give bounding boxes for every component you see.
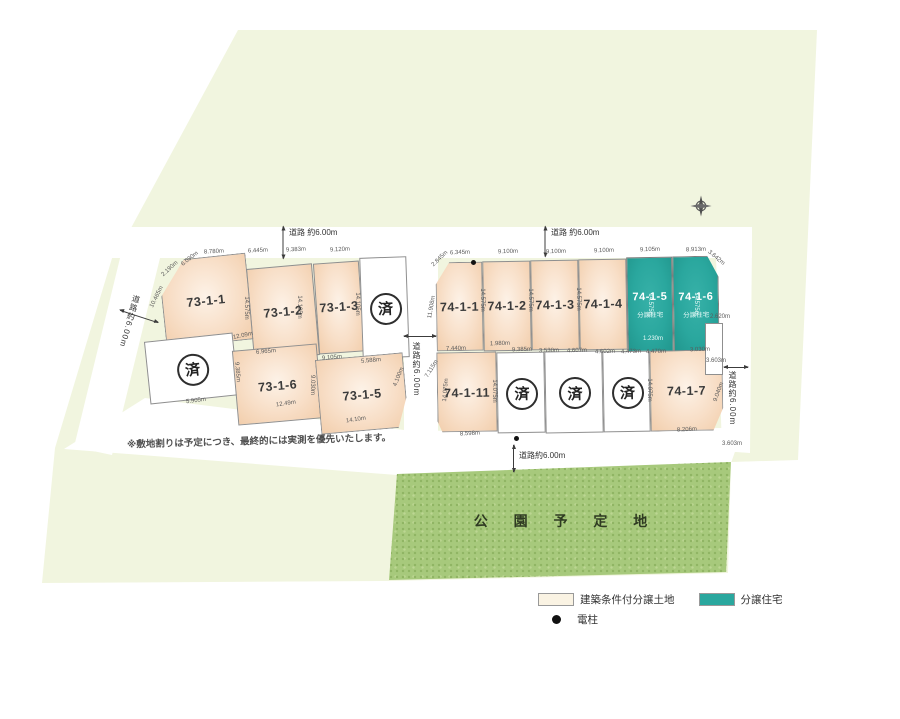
- dimension-label: 14.575m: [647, 293, 653, 316]
- lot-74-1-4: 74-1-4: [578, 259, 628, 351]
- lot-74-1-2: 74-1-2: [482, 261, 532, 352]
- lot-number-label: 73-1-6: [236, 375, 320, 396]
- dimension-label: 14.075m: [646, 378, 652, 401]
- sold-stamp: 済: [175, 352, 210, 387]
- legend: 建築条件付分譲土地 分譲住宅 電柱: [538, 592, 783, 632]
- dimension-label: 9.100m: [594, 248, 614, 255]
- lot-74-1-1: 74-1-1: [435, 262, 484, 352]
- dimension-label: 6.345m: [450, 250, 470, 257]
- road-width-label: 道路 約6.00m: [289, 227, 337, 238]
- dimension-label: 9.385m: [512, 347, 532, 354]
- dimension-arrow: [724, 367, 748, 368]
- dimension-label: 3.530m: [539, 348, 559, 355]
- road-width-label: 道路約6.00m: [519, 450, 565, 461]
- sold-stamp: 済: [611, 376, 644, 409]
- dimension-label: 9.105m: [640, 247, 660, 254]
- utility-pole-icon: [552, 615, 561, 624]
- dimension-label: 3.603m: [722, 441, 742, 447]
- dimension-label: 14.105m: [354, 292, 360, 315]
- lot-sold-74-a: 済: [496, 352, 545, 434]
- dimension-label: 9.383m: [286, 246, 306, 253]
- dimension-label: 2.620m: [710, 314, 730, 320]
- park-label: 公 園 予 定 地: [463, 511, 659, 531]
- dimension-label: 14.575m: [693, 292, 699, 315]
- dimension-label: 14.575m: [479, 288, 485, 311]
- dimension-label: 9.100m: [498, 249, 518, 256]
- lot-sold-73-b: 済: [144, 333, 239, 405]
- sold-stamp: 済: [506, 377, 539, 410]
- dimension-label: 8.598m: [460, 430, 480, 437]
- dimension-label: 1.230m: [643, 336, 663, 342]
- lot-sold-74-b: 済: [544, 351, 603, 434]
- sold-stamp: 済: [559, 377, 592, 410]
- dimension-arrow: [404, 336, 436, 337]
- dimension-label: 8.913m: [686, 247, 706, 254]
- road-width-label: 道路約6.00m: [727, 371, 738, 425]
- lot-74-1-3: 74-1-3: [530, 260, 580, 351]
- lot-number-label: 73-1-2: [250, 302, 315, 322]
- dimension-label: 14.105m: [296, 295, 302, 318]
- dimension-label: 4.607m: [567, 348, 587, 355]
- dimension-label: 1.980m: [490, 341, 510, 348]
- lot-number-label: 74-1-7: [651, 384, 722, 399]
- road-width-label: 道路 約6.00m: [551, 227, 599, 238]
- legend-swatch-cream: [538, 593, 574, 606]
- lot-number-label: 74-1-1: [437, 299, 482, 314]
- utility-pole-dot: [471, 260, 476, 265]
- utility-pole-dot: [514, 436, 519, 441]
- legend-label-utility-pole: 電柱: [577, 612, 598, 627]
- dimension-label: 14.575m: [527, 288, 533, 311]
- dimension-label: 9.100m: [546, 249, 566, 256]
- lot-number-label: 73-1-5: [319, 384, 406, 405]
- dimension-arrow: [283, 227, 284, 259]
- lot-number-label: 73-1-1: [163, 289, 250, 312]
- dimension-label: 14.075m: [491, 379, 497, 402]
- legend-swatch-teal: [699, 593, 735, 606]
- dimension-label: 8.780m: [204, 248, 224, 255]
- compass-north-icon: [690, 195, 712, 217]
- legend-row-2: 電柱: [538, 612, 783, 627]
- legend-label-conditional-land: 建築条件付分譲土地: [580, 592, 675, 607]
- legend-row-1: 建築条件付分譲土地 分譲住宅: [538, 592, 783, 607]
- dimension-label: 4.602m: [595, 349, 615, 356]
- dimension-label: 3.030m: [690, 347, 710, 354]
- legend-label-built-house: 分譲住宅: [741, 592, 783, 607]
- dimension-label: 4.470m: [646, 349, 666, 356]
- planned-park-area: 公 園 予 定 地: [388, 460, 733, 582]
- lot-number-label: 74-1-3: [532, 298, 578, 313]
- dimension-label: 9.120m: [330, 246, 350, 253]
- dimension-label: 14.575m: [243, 296, 249, 319]
- dimension-label: 8.206m: [677, 426, 697, 433]
- lot-sold-74-c: 済: [602, 351, 650, 433]
- lot-subdivision-map: 公 園 予 定 地 ※敷地割りは予定につき、最終的には実測を優先いたします。 建…: [0, 0, 900, 719]
- dimension-arrow: [513, 445, 514, 472]
- dimension-label: 6.445m: [248, 247, 268, 254]
- dimension-label: 4.473m: [621, 349, 641, 356]
- sold-stamp: 済: [369, 292, 402, 325]
- road-width-label: 道路約6.00m: [411, 342, 422, 396]
- dimension-label: 3.603m: [706, 358, 726, 364]
- dimension-label: 7.440m: [446, 346, 466, 353]
- lot-sold-73-a: 済: [359, 256, 409, 359]
- lot-number-label: 74-1-2: [484, 299, 530, 314]
- dimension-label: 14.575m: [575, 287, 581, 310]
- lot-number-label: 74-1-4: [580, 297, 626, 312]
- dimension-label: 9.030m: [309, 375, 315, 395]
